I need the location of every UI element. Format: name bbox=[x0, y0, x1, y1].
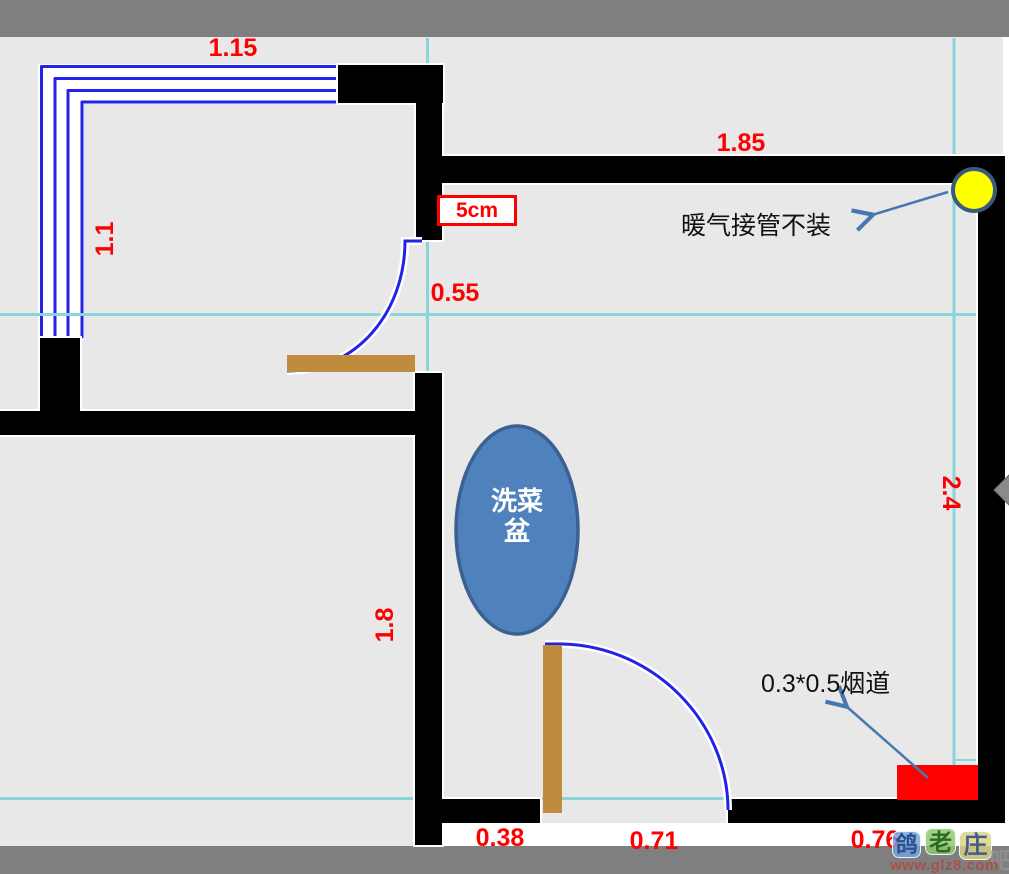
watermark-badge-1: 鸽 bbox=[892, 831, 921, 858]
flue-arrow bbox=[846, 706, 928, 778]
wall-thickness-callout: 5cm bbox=[437, 195, 517, 226]
dim-top-wall: 1.85 bbox=[706, 129, 776, 157]
flue-rect bbox=[897, 765, 978, 800]
heating-arrow bbox=[872, 192, 948, 215]
window-symbol bbox=[38, 64, 338, 338]
watermark-badge-3: 庄 bbox=[959, 831, 992, 860]
upper-door-arc-halo bbox=[287, 241, 422, 371]
lower-door-arc-halo bbox=[545, 644, 728, 810]
dim-left-window: 1.1 bbox=[91, 204, 119, 274]
dim-left-wall: 1.8 bbox=[371, 590, 399, 660]
wall-left-horizontal bbox=[0, 411, 442, 435]
lower-door-leaf bbox=[543, 645, 562, 813]
sink-label: 洗菜 盆 bbox=[455, 487, 579, 547]
heating-note: 暖气接管不装 bbox=[681, 206, 831, 242]
upper-door bbox=[287, 241, 422, 372]
watermark-badge-2: 老 bbox=[925, 828, 956, 855]
dim-right-wall: 2.4 bbox=[937, 458, 965, 528]
sink-label-line2: 盆 bbox=[455, 517, 579, 547]
floorplan-drawing bbox=[0, 0, 1009, 874]
wall-window-corner bbox=[338, 65, 443, 103]
dim-upper-door: 0.55 bbox=[420, 279, 490, 307]
wall-bottom-right bbox=[728, 799, 1005, 823]
wall-window-post bbox=[40, 338, 80, 413]
floorplan-canvas: 1.15 1.1 1.85 0.55 1.8 2.4 0.38 0.71 0.7… bbox=[0, 0, 1009, 874]
watermark-url: www.glz8.com bbox=[890, 857, 999, 874]
sink-label-line1: 洗菜 bbox=[455, 487, 579, 517]
wall-bottom-left bbox=[441, 799, 540, 823]
dim-bottom-left: 0.38 bbox=[465, 824, 535, 852]
heating-point-circle bbox=[953, 169, 995, 211]
watermark: 鸽 老 庄 吧 www.glz8.com bbox=[888, 824, 1009, 874]
flue-note: 0.3*0.5烟道 bbox=[761, 664, 890, 700]
wall-top bbox=[442, 156, 1005, 183]
wall-left-vertical bbox=[415, 373, 442, 845]
dim-bottom-door: 0.71 bbox=[619, 827, 689, 855]
upper-door-leaf bbox=[287, 355, 415, 372]
dim-top-window: 1.15 bbox=[198, 34, 268, 62]
lower-door bbox=[543, 644, 728, 813]
